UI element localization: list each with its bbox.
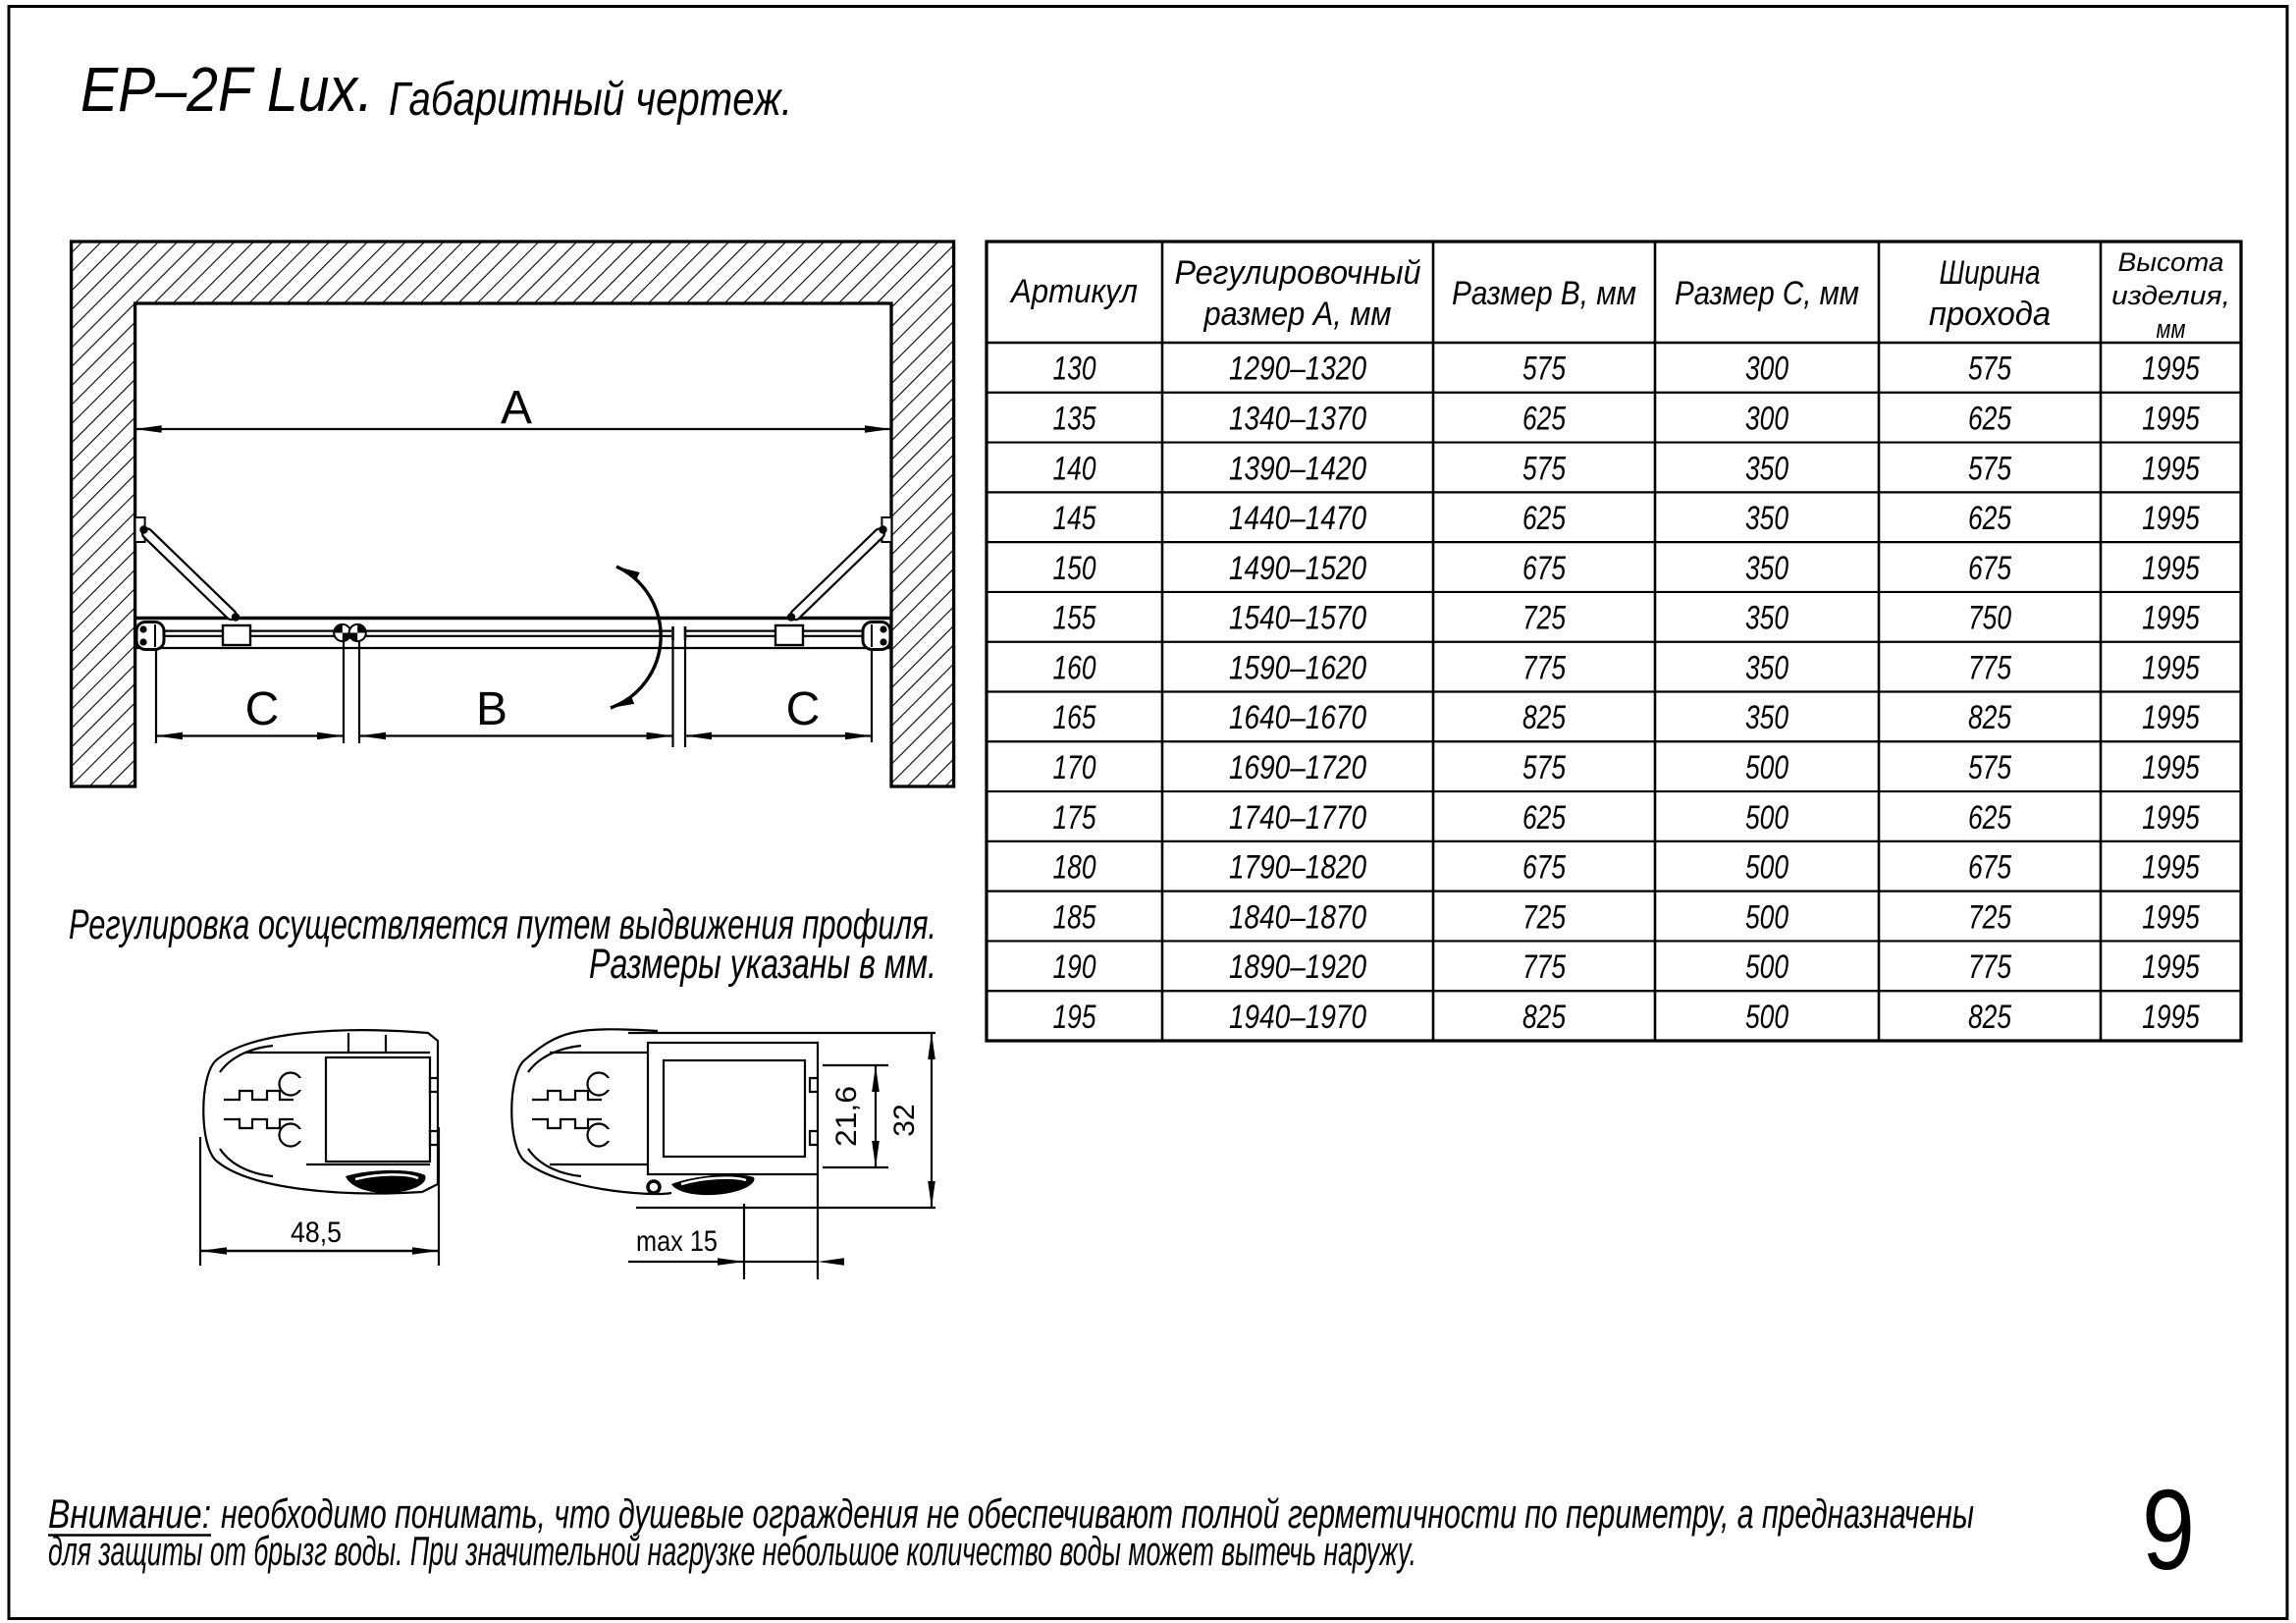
svg-text:32: 32 — [888, 1104, 921, 1136]
svg-text:1995: 1995 — [2142, 649, 2200, 686]
svg-text:775: 775 — [1968, 649, 2011, 686]
svg-text:EP–2F Lux.: EP–2F Lux. — [80, 54, 373, 125]
svg-text:500: 500 — [1745, 999, 1789, 1036]
svg-text:675: 675 — [1522, 550, 1566, 587]
svg-text:1995: 1995 — [2142, 749, 2200, 786]
svg-text:165: 165 — [1053, 699, 1096, 736]
svg-text:прохода: прохода — [1929, 296, 2051, 333]
svg-text:1995: 1995 — [2142, 849, 2200, 887]
svg-text:изделия,: изделия, — [2111, 281, 2230, 310]
svg-text:825: 825 — [1968, 699, 2011, 736]
svg-text:C: C — [245, 683, 280, 735]
svg-text:Размер В, мм: Размер В, мм — [1452, 275, 1636, 312]
svg-text:1740–1770: 1740–1770 — [1229, 799, 1366, 837]
svg-text:675: 675 — [1522, 849, 1566, 887]
svg-text:170: 170 — [1053, 749, 1096, 786]
svg-text:1490–1520: 1490–1520 — [1229, 550, 1366, 587]
svg-text:575: 575 — [1522, 749, 1566, 786]
svg-text:350: 350 — [1745, 600, 1789, 637]
svg-text:A: A — [501, 382, 532, 434]
svg-text:750: 750 — [1968, 600, 2011, 637]
svg-text:21,6: 21,6 — [830, 1086, 863, 1147]
svg-text:140: 140 — [1053, 450, 1096, 487]
svg-text:775: 775 — [1522, 649, 1566, 686]
svg-text:145: 145 — [1053, 500, 1096, 537]
svg-text:625: 625 — [1522, 401, 1566, 438]
svg-text:1940–1970: 1940–1970 — [1229, 999, 1366, 1036]
svg-text:725: 725 — [1968, 898, 2011, 936]
svg-text:1995: 1995 — [2142, 898, 2200, 936]
svg-text:1995: 1995 — [2142, 799, 2200, 837]
svg-text:625: 625 — [1968, 401, 2011, 438]
svg-text:195: 195 — [1053, 999, 1096, 1036]
svg-text:575: 575 — [1522, 351, 1566, 388]
svg-text:Артикул: Артикул — [1009, 273, 1138, 310]
svg-text:мм: мм — [2157, 314, 2186, 344]
svg-text:1840–1870: 1840–1870 — [1229, 898, 1366, 936]
svg-text:500: 500 — [1745, 799, 1789, 837]
svg-text:Габаритный чертеж.: Габаритный чертеж. — [389, 74, 792, 126]
svg-text:1340–1370: 1340–1370 — [1229, 401, 1366, 438]
svg-text:675: 675 — [1968, 550, 2011, 587]
svg-text:350: 350 — [1745, 500, 1789, 537]
svg-text:1290–1320: 1290–1320 — [1229, 351, 1366, 388]
svg-text:160: 160 — [1053, 649, 1096, 686]
svg-text:775: 775 — [1968, 948, 2011, 986]
svg-text:1640–1670: 1640–1670 — [1229, 699, 1366, 736]
svg-text:размер А, мм: размер А, мм — [1203, 296, 1392, 333]
svg-text:575: 575 — [1522, 450, 1566, 487]
svg-text:575: 575 — [1968, 450, 2011, 487]
svg-text:625: 625 — [1522, 799, 1566, 837]
svg-text:для защиты от брызг воды. При: для защиты от брызг воды. При значительн… — [48, 1528, 1416, 1574]
svg-text:Высота: Высота — [2118, 247, 2224, 277]
svg-text:1995: 1995 — [2142, 450, 2200, 487]
svg-text:625: 625 — [1968, 500, 2011, 537]
svg-text:150: 150 — [1053, 550, 1096, 587]
svg-text:350: 350 — [1745, 699, 1789, 736]
svg-text:185: 185 — [1053, 898, 1096, 936]
svg-text:1995: 1995 — [2142, 500, 2200, 537]
svg-text:350: 350 — [1745, 450, 1789, 487]
svg-text:575: 575 — [1968, 351, 2011, 388]
svg-text:625: 625 — [1522, 500, 1566, 537]
svg-text:1390–1420: 1390–1420 — [1229, 450, 1366, 487]
svg-text:500: 500 — [1745, 849, 1789, 887]
svg-text:135: 135 — [1053, 401, 1096, 438]
svg-text:1995: 1995 — [2142, 401, 2200, 438]
svg-text:180: 180 — [1053, 849, 1096, 887]
svg-text:B: B — [476, 683, 507, 735]
svg-text:1995: 1995 — [2142, 351, 2200, 388]
svg-text:825: 825 — [1522, 699, 1566, 736]
svg-text:1440–1470: 1440–1470 — [1229, 500, 1366, 537]
svg-text:1590–1620: 1590–1620 — [1229, 649, 1366, 686]
svg-text:350: 350 — [1745, 649, 1789, 686]
svg-text:500: 500 — [1745, 948, 1789, 986]
svg-text:1540–1570: 1540–1570 — [1229, 600, 1366, 637]
svg-text:1995: 1995 — [2142, 948, 2200, 986]
svg-text:300: 300 — [1745, 401, 1789, 438]
svg-text:1995: 1995 — [2142, 699, 2200, 736]
svg-text:190: 190 — [1053, 948, 1096, 986]
svg-text:1690–1720: 1690–1720 — [1229, 749, 1366, 786]
svg-text:Регулировочный: Регулировочный — [1175, 254, 1421, 292]
svg-text:Размеры указаны в мм.: Размеры указаны в мм. — [589, 941, 936, 988]
svg-text:625: 625 — [1968, 799, 2011, 837]
svg-text:C: C — [786, 683, 821, 735]
svg-text:725: 725 — [1522, 898, 1566, 936]
svg-text:130: 130 — [1053, 351, 1096, 388]
svg-text:9: 9 — [2142, 1466, 2195, 1594]
svg-text:1995: 1995 — [2142, 550, 2200, 587]
svg-text:825: 825 — [1522, 999, 1566, 1036]
svg-text:175: 175 — [1053, 799, 1096, 837]
svg-text:300: 300 — [1745, 351, 1789, 388]
svg-text:Размер С, мм: Размер С, мм — [1675, 275, 1859, 312]
svg-text:725: 725 — [1522, 600, 1566, 637]
svg-text:1890–1920: 1890–1920 — [1229, 948, 1366, 986]
svg-text:500: 500 — [1745, 749, 1789, 786]
svg-text:max 15: max 15 — [636, 1225, 718, 1258]
svg-text:775: 775 — [1522, 948, 1566, 986]
svg-text:825: 825 — [1968, 999, 2011, 1036]
svg-text:500: 500 — [1745, 898, 1789, 936]
svg-text:1995: 1995 — [2142, 999, 2200, 1036]
svg-text:1995: 1995 — [2142, 600, 2200, 637]
svg-text:575: 575 — [1968, 749, 2011, 786]
svg-text:48,5: 48,5 — [291, 1217, 342, 1249]
svg-text:1790–1820: 1790–1820 — [1229, 849, 1366, 887]
svg-text:350: 350 — [1745, 550, 1789, 587]
svg-text:155: 155 — [1053, 600, 1096, 637]
svg-text:Ширина: Ширина — [1940, 254, 2041, 292]
svg-text:675: 675 — [1968, 849, 2011, 887]
